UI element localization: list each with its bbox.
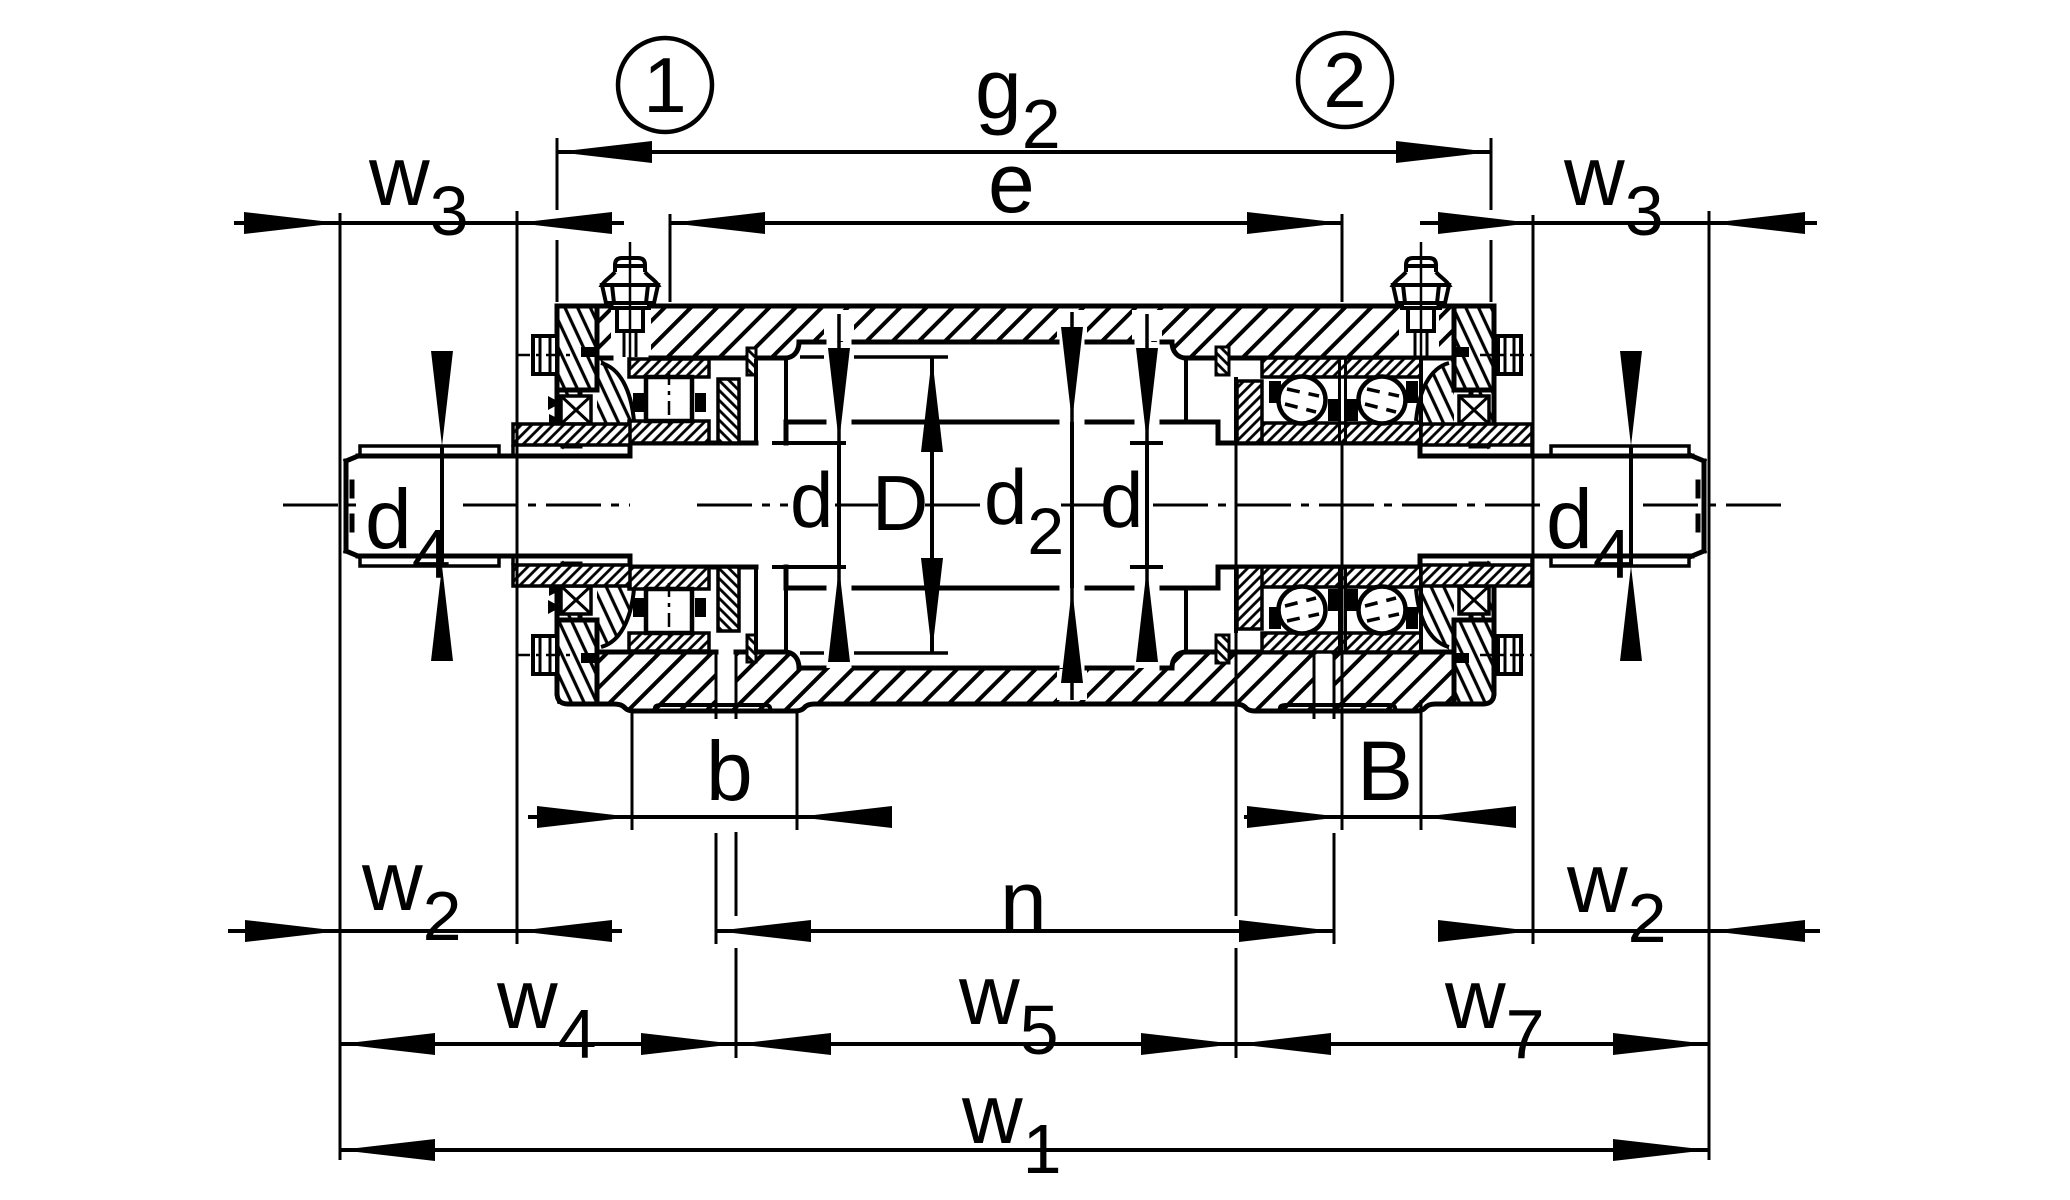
svg-text:B: B [1357, 724, 1413, 818]
svg-text:e: e [988, 136, 1035, 230]
svg-text:D: D [872, 459, 928, 547]
svg-text:2: 2 [1323, 36, 1366, 124]
svg-text:d: d [1100, 456, 1143, 544]
svg-text:d: d [790, 456, 833, 544]
svg-text:n: n [1000, 854, 1047, 948]
svg-text:b: b [706, 724, 753, 818]
svg-text:1: 1 [643, 41, 686, 129]
